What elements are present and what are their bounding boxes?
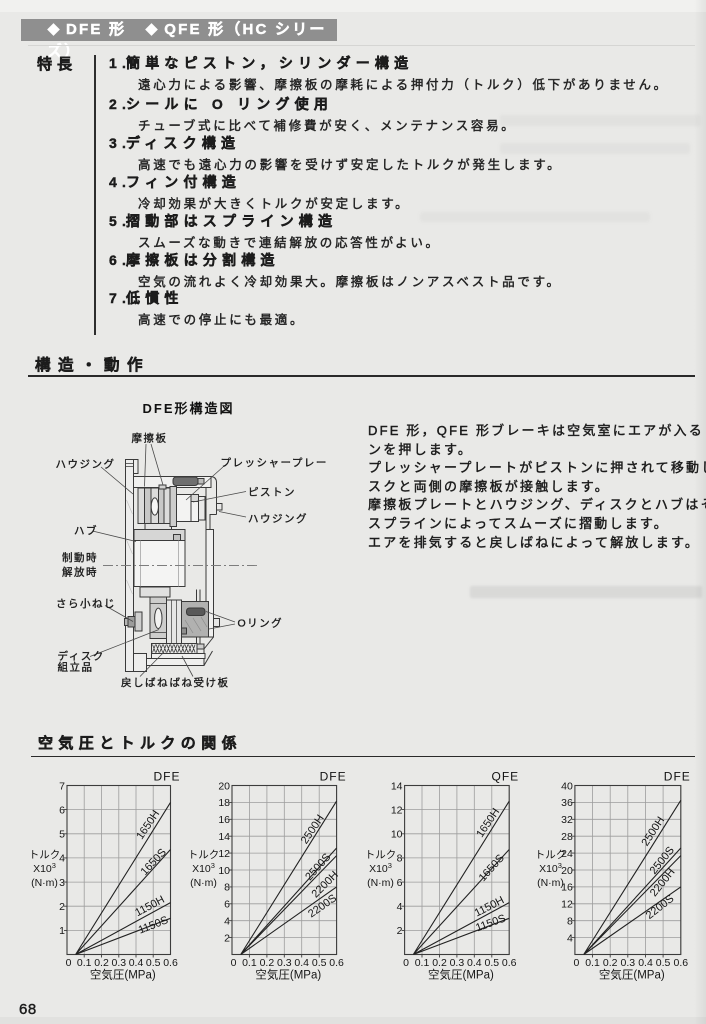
svg-text:0.2: 0.2 — [432, 957, 447, 969]
svg-text:0: 0 — [403, 957, 409, 969]
svg-text:0.3: 0.3 — [620, 957, 635, 969]
svg-text:36: 36 — [561, 797, 573, 809]
svg-text:0.1: 0.1 — [415, 957, 430, 969]
svg-text:0.5: 0.5 — [484, 957, 499, 969]
svg-text:14: 14 — [218, 831, 230, 843]
svg-text:QFE: QFE — [492, 770, 520, 784]
svg-text:DFE: DFE — [664, 770, 691, 784]
svg-text:0.6: 0.6 — [673, 957, 688, 969]
svg-text:3: 3 — [59, 877, 65, 889]
svg-text:(N·m): (N·m) — [190, 877, 217, 889]
svg-text:制動時: 制動時 — [62, 551, 98, 564]
svg-text:6: 6 — [59, 804, 65, 816]
svg-text:0.6: 0.6 — [329, 957, 344, 969]
svg-text:ハブ: ハブ — [74, 524, 98, 537]
svg-text:0: 0 — [231, 957, 237, 969]
svg-text:0.5: 0.5 — [312, 957, 327, 969]
svg-text:トルク: トルク — [535, 849, 567, 861]
svg-text:0.4: 0.4 — [294, 957, 309, 969]
svg-text:6: 6 — [224, 899, 230, 911]
svg-text:DFE形構造図: DFE形構造図 — [143, 401, 235, 416]
svg-text:0.1: 0.1 — [242, 957, 257, 969]
svg-text:(N·m): (N·m) — [31, 877, 58, 889]
svg-text:0.6: 0.6 — [502, 957, 517, 969]
svg-text:2200S: 2200S — [644, 893, 676, 922]
svg-text:12: 12 — [561, 899, 573, 911]
svg-text:DFE: DFE — [154, 770, 181, 784]
svg-text:0.1: 0.1 — [77, 957, 92, 969]
svg-text:7: 7 — [59, 780, 65, 792]
svg-text:0.3: 0.3 — [111, 957, 126, 969]
svg-text:組立品: 組立品 — [58, 661, 94, 674]
svg-text:X103: X103 — [33, 861, 56, 875]
svg-text:20: 20 — [218, 780, 230, 792]
svg-text:2: 2 — [397, 925, 403, 937]
svg-text:空気圧(MPa): 空気圧(MPa) — [428, 968, 494, 982]
svg-text:解放時: 解放時 — [62, 566, 98, 579]
svg-text:ばね受け板: ばね受け板 — [170, 676, 230, 689]
svg-text:18: 18 — [218, 797, 230, 809]
svg-text:戻しばね: 戻しばね — [121, 676, 169, 689]
svg-text:10: 10 — [218, 865, 230, 877]
svg-text:トルク: トルク — [365, 849, 397, 861]
svg-text:8: 8 — [224, 882, 230, 894]
svg-text:0: 0 — [573, 957, 579, 969]
svg-text:0.3: 0.3 — [450, 957, 465, 969]
svg-text:1650H: 1650H — [134, 808, 162, 842]
svg-text:16: 16 — [218, 814, 230, 826]
svg-text:5: 5 — [59, 829, 65, 841]
svg-text:0.2: 0.2 — [94, 957, 109, 969]
svg-text:14: 14 — [391, 780, 403, 792]
svg-text:32: 32 — [561, 814, 573, 826]
svg-text:空気圧(MPa): 空気圧(MPa) — [90, 968, 156, 982]
svg-text:0.2: 0.2 — [603, 957, 618, 969]
svg-text:0.5: 0.5 — [656, 957, 671, 969]
svg-text:12: 12 — [218, 848, 230, 860]
svg-text:0.5: 0.5 — [146, 957, 161, 969]
svg-text:空気圧(MPa): 空気圧(MPa) — [599, 968, 665, 982]
svg-text:4: 4 — [397, 901, 403, 913]
svg-text:0.4: 0.4 — [467, 957, 482, 969]
svg-text:ハウジング: ハウジング — [56, 458, 116, 471]
svg-text:1: 1 — [59, 925, 65, 937]
svg-text:空気圧(MPa): 空気圧(MPa) — [255, 968, 321, 982]
svg-text:1650S: 1650S — [138, 846, 168, 877]
svg-text:6: 6 — [397, 877, 403, 889]
svg-text:摩擦板: 摩擦板 — [132, 432, 168, 445]
svg-text:12: 12 — [391, 804, 403, 816]
svg-text:Oリング: Oリング — [238, 617, 284, 630]
svg-text:8: 8 — [397, 853, 403, 865]
svg-text:X103: X103 — [539, 861, 562, 875]
svg-text:2: 2 — [224, 932, 230, 944]
svg-text:トルク: トルク — [188, 849, 220, 861]
svg-text:X103: X103 — [192, 861, 215, 875]
svg-text:4: 4 — [567, 932, 573, 944]
svg-text:40: 40 — [561, 780, 573, 792]
svg-text:0.1: 0.1 — [585, 957, 600, 969]
svg-text:(N·m): (N·m) — [367, 877, 394, 889]
svg-text:2500H: 2500H — [299, 813, 327, 847]
svg-text:28: 28 — [561, 831, 573, 843]
svg-text:さら小ねじ: さら小ねじ — [56, 598, 116, 610]
svg-text:0.2: 0.2 — [260, 957, 275, 969]
svg-text:8: 8 — [567, 916, 573, 928]
svg-text:ピストン: ピストン — [248, 487, 296, 499]
svg-text:0.4: 0.4 — [129, 957, 144, 969]
svg-text:プレッシャープレート: プレッシャープレート — [221, 457, 331, 469]
svg-text:X103: X103 — [369, 861, 392, 875]
svg-text:0.6: 0.6 — [163, 957, 178, 969]
svg-text:2: 2 — [59, 901, 65, 913]
svg-text:0.4: 0.4 — [638, 957, 653, 969]
svg-text:(N·m): (N·m) — [537, 877, 564, 889]
svg-text:20: 20 — [561, 865, 573, 877]
svg-text:0.3: 0.3 — [277, 957, 292, 969]
svg-text:0: 0 — [66, 957, 72, 969]
svg-text:10: 10 — [391, 829, 403, 841]
svg-text:トルク: トルク — [29, 849, 61, 861]
svg-text:4: 4 — [224, 916, 230, 928]
svg-text:ハウジング: ハウジング — [248, 512, 308, 525]
svg-text:DFE: DFE — [320, 770, 347, 784]
